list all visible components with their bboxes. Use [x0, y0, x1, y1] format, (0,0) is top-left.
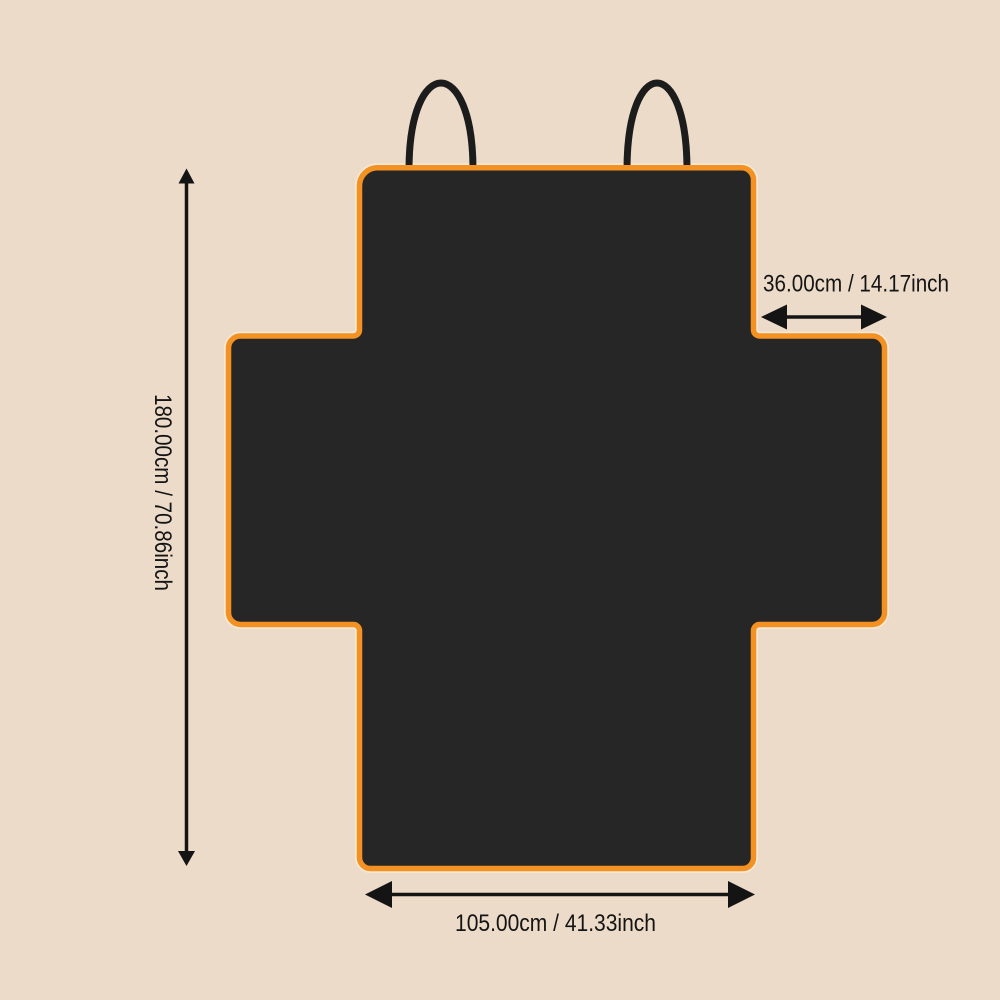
svg-text:105.00cm / 41.33inch: 105.00cm / 41.33inch	[455, 910, 656, 937]
svg-text:36.00cm / 14.17inch: 36.00cm / 14.17inch	[763, 271, 949, 298]
svg-text:180.00cm / 70.86inch: 180.00cm / 70.86inch	[149, 394, 176, 591]
